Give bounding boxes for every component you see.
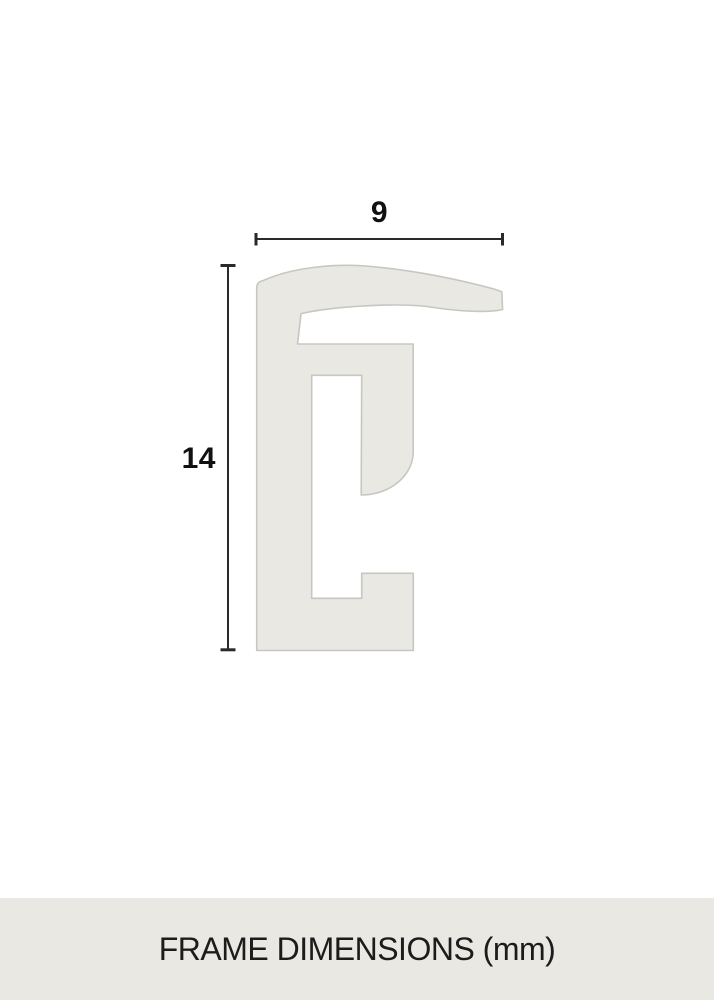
- frame-profile-diagram-page: 9 14 FRAME DIMENSIONS (mm): [0, 0, 714, 1000]
- footer-bar: FRAME DIMENSIONS (mm): [0, 898, 714, 1000]
- height-dimension-label: 14: [110, 445, 216, 473]
- footer-title: FRAME DIMENSIONS (mm): [159, 931, 556, 968]
- height-dimension-line: [221, 265, 236, 651]
- profile-diagram-canvas: [0, 0, 714, 1000]
- width-dimension-line: [256, 233, 504, 246]
- width-dimension-label: 9: [256, 199, 503, 227]
- frame-profile-cross-section: [257, 265, 503, 650]
